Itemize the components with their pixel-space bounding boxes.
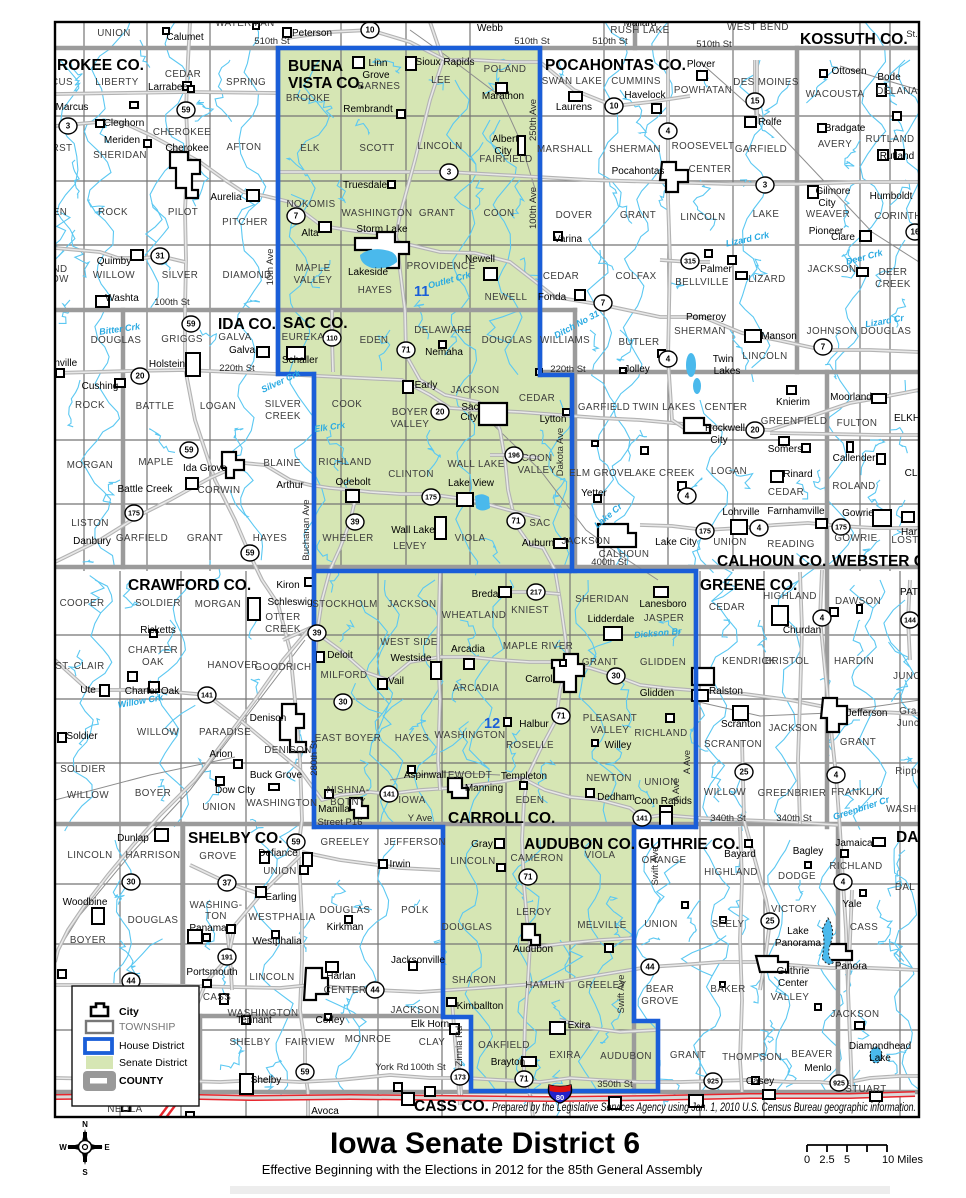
svg-text:Kimballton: Kimballton [457,1001,504,1012]
svg-text:WASHING-: WASHING- [190,900,243,911]
svg-text:5: 5 [844,1154,850,1166]
svg-text:Templeton: Templeton [501,771,547,782]
svg-text:GARFIELD: GARFIELD [116,533,168,544]
svg-text:Woodbine: Woodbine [63,897,108,908]
svg-text:CENTER: CENTER [324,985,367,996]
svg-text:Holstein: Holstein [149,359,185,370]
svg-text:141: 141 [383,792,395,799]
svg-text:Center: Center [778,978,809,989]
svg-text:CHEROKEE: CHEROKEE [153,127,211,138]
svg-text:Arthur: Arthur [276,480,304,491]
svg-text:220th St: 220th St [219,363,255,374]
svg-text:SOLDIER: SOLDIER [60,764,106,775]
svg-text:RUTLAND: RUTLAND [865,134,914,145]
svg-text:100th St: 100th St [410,1062,446,1073]
svg-text:BOYER: BOYER [135,788,171,799]
svg-text:ST. CLAIR: ST. CLAIR [55,661,104,672]
svg-text:GRANT: GRANT [670,1050,706,1061]
svg-text:Earling: Earling [265,892,296,903]
svg-text:Havelock: Havelock [624,90,666,101]
svg-text:ROCK: ROCK [98,207,128,218]
svg-text:Har: Har [901,527,918,538]
svg-text:Grove: Grove [362,70,390,81]
svg-text:WASHINGTON: WASHINGTON [247,798,318,809]
svg-text:City: City [460,412,477,423]
svg-text:PARADISE: PARADISE [199,727,251,738]
svg-text:4: 4 [841,878,846,887]
svg-text:191: 191 [221,955,233,962]
svg-text:FRANKLIN: FRANKLIN [831,787,883,798]
svg-text:ELM GROVE: ELM GROVE [569,468,631,479]
svg-text:350th St: 350th St [597,1079,633,1090]
svg-text:Galva: Galva [229,345,256,356]
svg-text:WHEELER: WHEELER [322,533,373,544]
svg-text:7: 7 [821,343,826,352]
svg-text:GALVA: GALVA [218,332,251,343]
svg-text:JACKSON: JACKSON [561,536,610,547]
svg-text:CASS: CASS [203,992,231,1003]
svg-text:MAPLE: MAPLE [138,457,173,468]
svg-text:IDA CO.: IDA CO. [218,316,276,333]
svg-text:4: 4 [834,771,839,780]
svg-text:DES MOINES: DES MOINES [733,77,799,88]
svg-text:CEDAR: CEDAR [709,602,745,613]
svg-text:20: 20 [436,408,445,417]
svg-text:340th St: 340th St [776,813,812,824]
svg-text:CEDAR: CEDAR [519,393,555,404]
svg-text:Prepared by the Legislative Se: Prepared by the Legislative Services Age… [492,1102,916,1114]
svg-text:4: 4 [666,355,671,364]
svg-text:VIOLA: VIOLA [455,533,486,544]
svg-text:E: E [104,1143,110,1152]
svg-text:CRAWFORD CO.: CRAWFORD CO. [128,577,251,594]
svg-text:WASHINGTON: WASHINGTON [435,730,506,741]
svg-text:20: 20 [751,426,760,435]
svg-text:CLAY: CLAY [419,1037,446,1048]
svg-text:UNION: UNION [97,28,131,39]
svg-text:Meriden: Meriden [104,135,140,146]
svg-text:Lake View: Lake View [448,478,495,489]
svg-text:Dakota Ave: Dakota Ave [555,428,566,476]
svg-text:Irwin: Irwin [389,859,410,870]
svg-text:Jolley: Jolley [624,364,650,375]
svg-text:510th St: 510th St [254,36,290,47]
svg-text:25: 25 [766,917,775,926]
svg-text:FAIRVIEW: FAIRVIEW [285,1037,335,1048]
svg-text:Cleghorn: Cleghorn [104,118,145,129]
svg-text:LIBERTY: LIBERTY [95,77,139,88]
svg-text:Dunlap: Dunlap [117,833,149,844]
svg-text:VALLEY: VALLEY [591,725,630,736]
svg-text:City: City [710,435,727,446]
svg-text:400th St: 400th St [591,557,627,568]
svg-text:SOLDIER: SOLDIER [135,598,181,609]
svg-text:BUTLER: BUTLER [618,337,659,348]
svg-text:25: 25 [740,768,749,777]
svg-text:Moorland: Moorland [830,392,872,403]
svg-text:Bradgate: Bradgate [825,123,866,134]
svg-text:Newell: Newell [465,254,495,265]
svg-text:LISTON: LISTON [71,518,109,529]
svg-text:EDEN: EDEN [516,795,545,806]
svg-text:S: S [82,1168,88,1177]
svg-text:3: 3 [447,168,452,177]
svg-text:ORANGE: ORANGE [642,855,687,866]
svg-text:MARSHALL: MARSHALL [537,144,593,155]
svg-text:Lake City: Lake City [655,537,697,548]
svg-text:Buchanan Ave: Buchanan Ave [301,499,312,560]
svg-text:ELK: ELK [300,143,320,154]
svg-text:CEDAR: CEDAR [165,69,201,80]
svg-text:BUENA: BUENA [288,58,343,75]
svg-text:HARDIN: HARDIN [834,656,874,667]
svg-text:Rembrandt: Rembrandt [343,104,393,115]
svg-text:ROLAND: ROLAND [832,481,875,492]
svg-text:Arcadia: Arcadia [451,644,485,655]
svg-text:EXIRA: EXIRA [549,1050,580,1061]
svg-text:Linn: Linn [369,58,388,69]
svg-text:Guthrie: Guthrie [777,966,810,977]
svg-text:DOUGLAS: DOUGLAS [91,335,142,346]
svg-text:Ricketts: Ricketts [140,625,176,636]
svg-text:Gra: Gra [899,706,917,717]
svg-text:LINCOLN: LINCOLN [417,141,462,152]
svg-text:VIOLA: VIOLA [585,850,616,861]
svg-text:DENISON: DENISON [264,745,311,756]
svg-text:LAKE CREEK: LAKE CREEK [629,468,695,479]
svg-text:Gilmore: Gilmore [815,186,850,197]
svg-text:Odebolt: Odebolt [335,477,370,488]
svg-text:EAST BOYER: EAST BOYER [315,733,381,744]
svg-text:Casey: Casey [746,1076,774,1087]
svg-text:HAYES: HAYES [358,285,393,296]
svg-text:BAKER: BAKER [710,984,745,995]
svg-text:JACKSON: JACKSON [390,1005,439,1016]
svg-text:15: 15 [751,97,760,106]
svg-text:925: 925 [707,1079,719,1086]
svg-text:Y Ave: Y Ave [408,813,432,824]
svg-text:HARRISON: HARRISON [126,850,181,861]
svg-text:Panora: Panora [835,961,868,972]
svg-text:0: 0 [804,1154,810,1166]
svg-text:Denison: Denison [250,713,287,724]
svg-text:Schaller: Schaller [282,355,319,366]
svg-text:Kiron: Kiron [276,580,299,591]
svg-text:Lytton: Lytton [540,414,567,425]
svg-text:Kirkman: Kirkman [327,922,364,933]
svg-text:GRANT: GRANT [840,737,876,748]
svg-text:SAC: SAC [529,518,550,529]
svg-text:Exira: Exira [568,1020,591,1031]
svg-text:Lake: Lake [869,1053,891,1064]
svg-text:CREEK: CREEK [265,624,301,635]
svg-text:HIGHLAND: HIGHLAND [763,591,817,602]
svg-text:10: 10 [366,26,375,35]
svg-text:GRANT: GRANT [187,533,223,544]
svg-text:GLIDDEN: GLIDDEN [640,657,686,668]
svg-text:LINCOLN: LINCOLN [67,850,112,861]
svg-text:CENTER: CENTER [689,164,732,175]
svg-text:10 Miles: 10 Miles [882,1154,923,1166]
svg-text:Pomeroy: Pomeroy [686,312,726,323]
svg-text:PILOT: PILOT [168,207,198,218]
svg-text:WILLOW: WILLOW [137,727,179,738]
svg-text:MAPLE: MAPLE [295,263,330,274]
svg-text:Lohrville: Lohrville [722,507,760,518]
svg-text:Knierim: Knierim [776,397,810,408]
svg-text:DOVER: DOVER [556,210,593,221]
svg-text:JACKSON: JACKSON [387,599,436,610]
svg-text:Avoca: Avoca [311,1106,339,1117]
svg-text:HAYES: HAYES [253,533,288,544]
svg-text:COON: COON [522,453,553,464]
svg-text:Lakes: Lakes [714,366,741,377]
svg-text:EUREKA: EUREKA [282,332,325,343]
svg-text:Lake: Lake [787,926,809,937]
svg-text:39: 39 [351,518,360,527]
svg-text:St.: St. [906,29,918,40]
svg-text:STUART: STUART [845,1084,886,1095]
svg-text:HIGHLAND: HIGHLAND [704,867,758,878]
svg-text:BRISTOL: BRISTOL [765,656,810,667]
svg-text:Westphalia: Westphalia [252,936,302,947]
svg-text:30: 30 [339,698,348,707]
svg-text:EDEN: EDEN [360,335,389,346]
svg-text:Laurens: Laurens [556,102,592,113]
svg-text:510th St: 510th St [696,39,732,50]
svg-text:Larrabee: Larrabee [148,82,188,93]
svg-text:WASHI: WASHI [886,804,920,815]
svg-text:250th Ave: 250th Ave [528,99,539,141]
svg-text:LOGAN: LOGAN [711,466,747,477]
svg-text:MONROE: MONROE [345,1034,392,1045]
svg-text:Ottosen: Ottosen [831,66,866,77]
svg-text:GROVE: GROVE [199,851,236,862]
svg-text:WILLOW: WILLOW [67,790,109,801]
svg-text:Shelby: Shelby [251,1075,282,1086]
svg-text:Jamaica: Jamaica [835,838,873,849]
svg-text:TOWNSHIP: TOWNSHIP [119,1021,175,1033]
svg-text:59: 59 [185,446,194,455]
svg-text:DELANA: DELANA [876,86,918,97]
svg-text:Buck Grove: Buck Grove [250,770,303,781]
svg-text:59: 59 [246,549,255,558]
svg-text:GROVE: GROVE [641,996,678,1007]
svg-text:GREENBRIER: GREENBRIER [758,788,827,799]
svg-text:A Ave: A Ave [671,778,682,802]
svg-text:71: 71 [512,517,521,526]
svg-text:GREENFIELD: GREENFIELD [761,416,828,427]
svg-text:Ute: Ute [80,685,96,696]
svg-text:Truesdale: Truesdale [343,180,388,191]
svg-text:EWOLDT: EWOLDT [448,770,492,781]
svg-text:Portsmouth: Portsmouth [186,967,237,978]
svg-text:CARROLL CO.: CARROLL CO. [448,810,555,827]
svg-text:GARFIELD: GARFIELD [578,402,630,413]
svg-text:CASS CO.: CASS CO. [414,1098,489,1115]
svg-text:141: 141 [201,693,213,700]
svg-text:7: 7 [601,299,606,308]
svg-text:WEBSTER C: WEBSTER C [832,553,925,570]
svg-text:Washta: Washta [105,293,139,304]
svg-text:VICTORY: VICTORY [771,904,817,915]
svg-text:CENTER: CENTER [705,402,748,413]
svg-text:SCRANTON: SCRANTON [704,739,762,750]
svg-text:NOKOMIS: NOKOMIS [286,199,335,210]
svg-text:Corley: Corley [316,1015,345,1026]
svg-text:Alta: Alta [301,228,319,239]
svg-text:196: 196 [508,453,520,460]
svg-text:JACKSON: JACKSON [768,723,817,734]
svg-text:City: City [494,146,511,157]
svg-text:315: 315 [684,259,696,266]
svg-text:71: 71 [557,712,566,721]
svg-text:Brayton: Brayton [491,1057,525,1068]
svg-text:DODGE: DODGE [778,871,816,882]
svg-text:ROKEE CO.: ROKEE CO. [57,57,144,74]
svg-text:UNION: UNION [263,866,297,877]
svg-text:Swift Ave: Swift Ave [650,847,661,886]
svg-text:WASHINGTON: WASHINGTON [342,208,413,219]
svg-text:CHARTER: CHARTER [128,645,178,656]
svg-text:MELVILLE: MELVILLE [577,920,626,931]
svg-text:SCOTT: SCOTT [359,143,394,154]
svg-text:SILVER: SILVER [265,399,302,410]
svg-text:AUDUBON CO.: AUDUBON CO. [524,836,635,853]
svg-text:NEWELL: NEWELL [485,292,528,303]
svg-text:DOUGLAS: DOUGLAS [482,335,533,346]
svg-text:Somers: Somers [768,444,802,455]
svg-text:RICHLAND: RICHLAND [634,728,687,739]
svg-text:THOMPSON: THOMPSON [722,1052,782,1063]
svg-text:Westside: Westside [391,653,432,664]
svg-text:Dow City: Dow City [215,785,255,796]
svg-text:WILLIAMS: WILLIAMS [540,335,590,346]
svg-text:Gray: Gray [471,839,493,850]
svg-text:WHEATLAND: WHEATLAND [442,610,506,621]
svg-text:BOYER: BOYER [70,935,106,946]
svg-text:PAT: PAT [900,587,918,598]
svg-text:TWIN LAKES: TWIN LAKES [632,402,695,413]
svg-text:UNION: UNION [713,537,747,548]
svg-text:GOODRICH: GOODRICH [254,662,311,673]
svg-text:100th Ave: 100th Ave [528,187,539,229]
svg-text:Humboldt: Humboldt [870,191,913,202]
svg-text:JOHNSON: JOHNSON [807,326,858,337]
svg-text:KOSSUTH CO.: KOSSUTH CO. [800,31,908,48]
svg-text:BLAINE: BLAINE [263,458,300,469]
svg-text:MORGAN: MORGAN [67,460,114,471]
svg-text:HANOVER: HANOVER [207,660,258,671]
svg-text:Varina: Varina [554,234,583,245]
svg-text:COON: COON [484,208,515,219]
svg-text:Aurelia: Aurelia [210,192,242,203]
svg-text:RICHLAND: RICHLAND [318,457,371,468]
svg-text:PITCHER: PITCHER [222,217,268,228]
svg-text:City: City [818,198,835,209]
svg-text:175: 175 [128,511,140,518]
svg-text:NEWTON: NEWTON [586,773,632,784]
svg-text:Elk Horn: Elk Horn [411,1019,449,1030]
svg-text:Calumet: Calumet [166,32,203,43]
svg-text:OAK: OAK [142,657,164,668]
svg-text:340th St: 340th St [710,813,746,824]
svg-text:CALHOUN CO.: CALHOUN CO. [717,553,826,570]
svg-text:Manning: Manning [465,783,503,794]
svg-text:80: 80 [556,1093,564,1102]
svg-text:Twin: Twin [713,354,734,365]
svg-text:MILFORD: MILFORD [321,670,368,681]
svg-text:39: 39 [313,629,322,638]
svg-text:30: 30 [127,878,136,887]
svg-text:KNIEST: KNIEST [511,605,549,616]
svg-text:CORWIN: CORWIN [197,485,240,496]
svg-text:10: 10 [610,102,619,111]
svg-text:Danbury: Danbury [73,536,111,547]
svg-text:CREEK: CREEK [875,279,911,290]
svg-text:Churdan: Churdan [783,625,821,636]
svg-text:Defiance: Defiance [258,848,298,859]
svg-text:VALLEY: VALLEY [294,275,333,286]
svg-text:IOWA: IOWA [398,795,425,806]
svg-text:SEELY: SEELY [712,919,745,930]
svg-text:100th St: 100th St [154,297,190,308]
svg-text:AFTON: AFTON [226,142,261,153]
svg-text:Menlo: Menlo [804,1063,832,1074]
svg-text:CEDAR: CEDAR [768,487,804,498]
svg-text:SILVER: SILVER [162,270,199,281]
svg-text:Quimby: Quimby [97,256,131,267]
svg-text:SHERMAN: SHERMAN [609,144,661,155]
svg-text:PLEASANT: PLEASANT [583,713,637,724]
svg-text:JASPER: JASPER [644,613,685,624]
svg-text:CLINTON: CLINTON [388,469,434,480]
svg-text:LAKE: LAKE [753,209,780,220]
svg-text:BELLVILLE: BELLVILLE [675,277,729,288]
svg-text:York Rd: York Rd [375,1062,408,1073]
svg-text:Rutland: Rutland [880,151,914,162]
svg-text:MORGAN: MORGAN [195,599,242,610]
svg-text:280th St: 280th St [309,740,320,776]
svg-text:JUNC: JUNC [893,671,921,682]
svg-text:175: 175 [425,495,437,502]
svg-text:POLK: POLK [401,905,429,916]
svg-text:WALL LAKE: WALL LAKE [447,459,504,470]
svg-text:VALLEY: VALLEY [518,465,557,476]
svg-text:BARNES: BARNES [358,81,401,92]
svg-text:4: 4 [685,492,690,501]
svg-text:STOCKHOLM: STOCKHOLM [312,599,377,610]
svg-text:Jefferson: Jefferson [847,708,888,719]
svg-text:NISHNA-: NISHNA- [326,785,369,796]
svg-text:MAPLE RIVER: MAPLE RIVER [503,641,573,652]
svg-text:GRANT: GRANT [419,208,455,219]
svg-text:A Ave: A Ave [682,750,693,774]
svg-text:CAMERON: CAMERON [511,853,564,864]
svg-text:ARCADIA: ARCADIA [453,683,499,694]
svg-text:510th St: 510th St [592,36,628,47]
svg-text:LOGAN: LOGAN [200,401,236,412]
svg-text:Aspinwall: Aspinwall [404,770,446,781]
svg-text:Vail: Vail [388,676,404,687]
svg-text:JACKSON: JACKSON [450,385,499,396]
svg-text:CEDAR: CEDAR [543,271,579,282]
svg-text:WEAVER: WEAVER [806,209,850,220]
svg-text:ROCK: ROCK [75,400,105,411]
svg-text:Soldier: Soldier [66,731,98,742]
svg-text:HAYES: HAYES [395,733,430,744]
svg-text:Plover: Plover [687,59,716,70]
